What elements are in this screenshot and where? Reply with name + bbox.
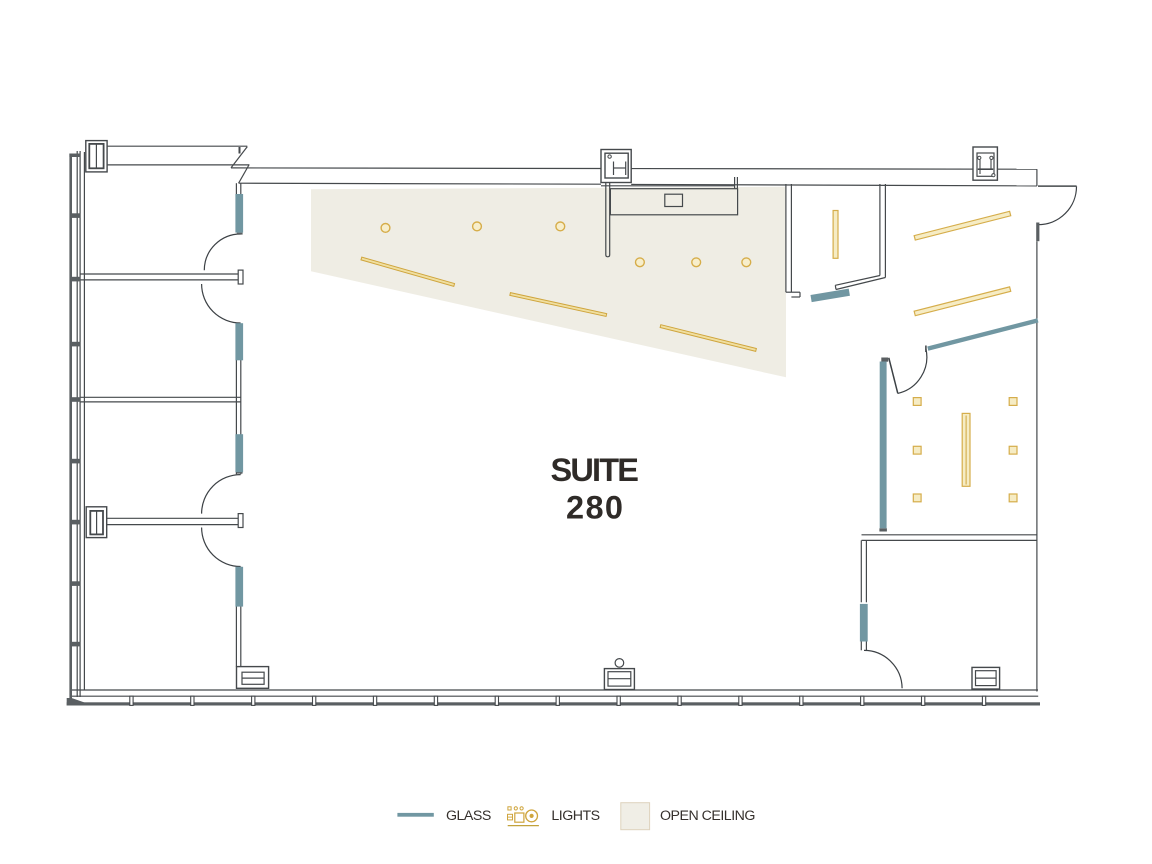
svg-text:SUITE: SUITE — [550, 452, 638, 488]
svg-text:280: 280 — [566, 489, 624, 525]
svg-text:GLASS: GLASS — [446, 808, 491, 824]
svg-text:LIGHTS: LIGHTS — [551, 808, 599, 824]
svg-text:OPEN CEILING: OPEN CEILING — [660, 808, 755, 824]
